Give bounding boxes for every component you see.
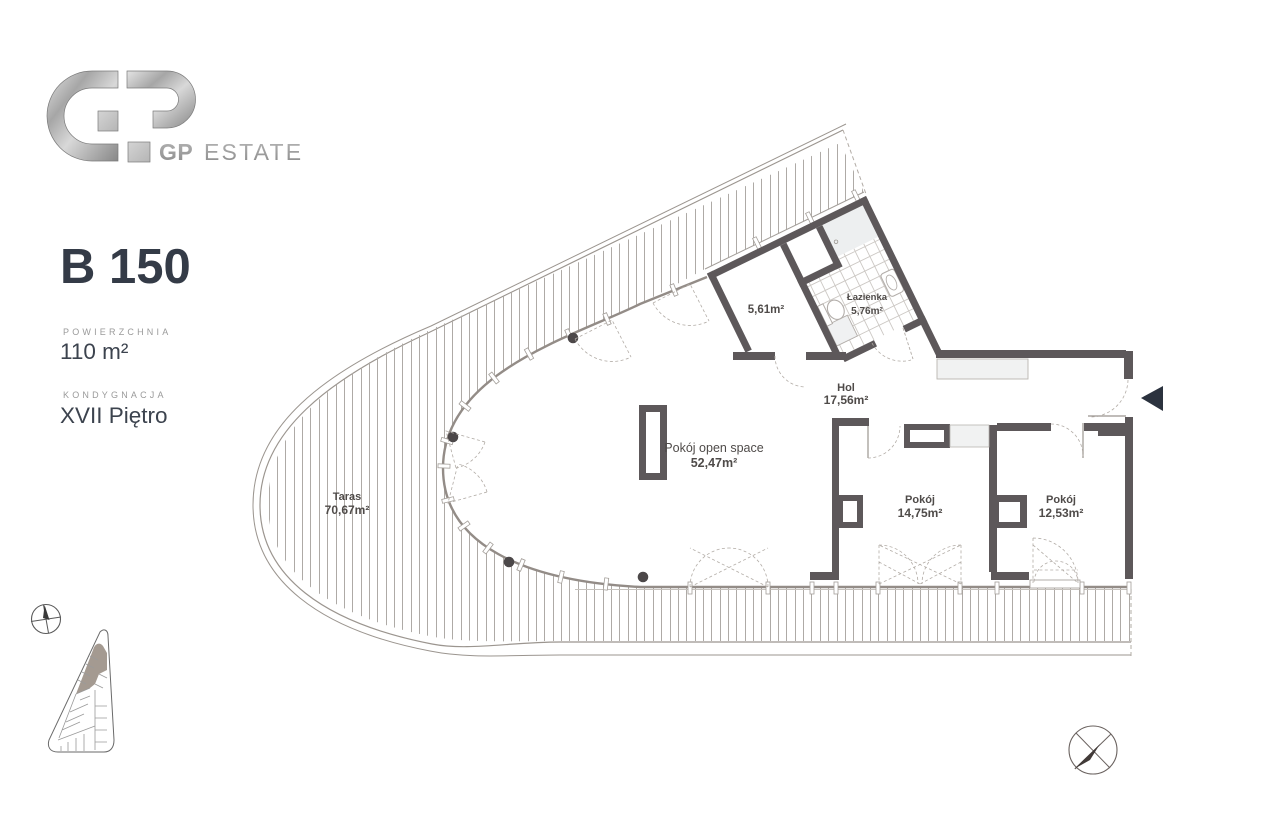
svg-text:5,61m²: 5,61m² (748, 304, 785, 316)
svg-text:Pokój: Pokój (905, 494, 935, 506)
svg-text:70,67m²: 70,67m² (325, 503, 370, 517)
svg-text:17,56m²: 17,56m² (824, 393, 869, 407)
svg-text:Łazienka: Łazienka (847, 292, 888, 303)
svg-text:5,76m²: 5,76m² (851, 306, 883, 317)
svg-text:Taras: Taras (333, 491, 362, 503)
svg-text:12,53m²: 12,53m² (1039, 506, 1084, 520)
svg-text:52,47m²: 52,47m² (691, 456, 738, 470)
svg-text:14,75m²: 14,75m² (898, 506, 943, 520)
svg-text:Pokój open space: Pokój open space (664, 441, 763, 455)
svg-text:Pokój: Pokój (1046, 494, 1076, 506)
